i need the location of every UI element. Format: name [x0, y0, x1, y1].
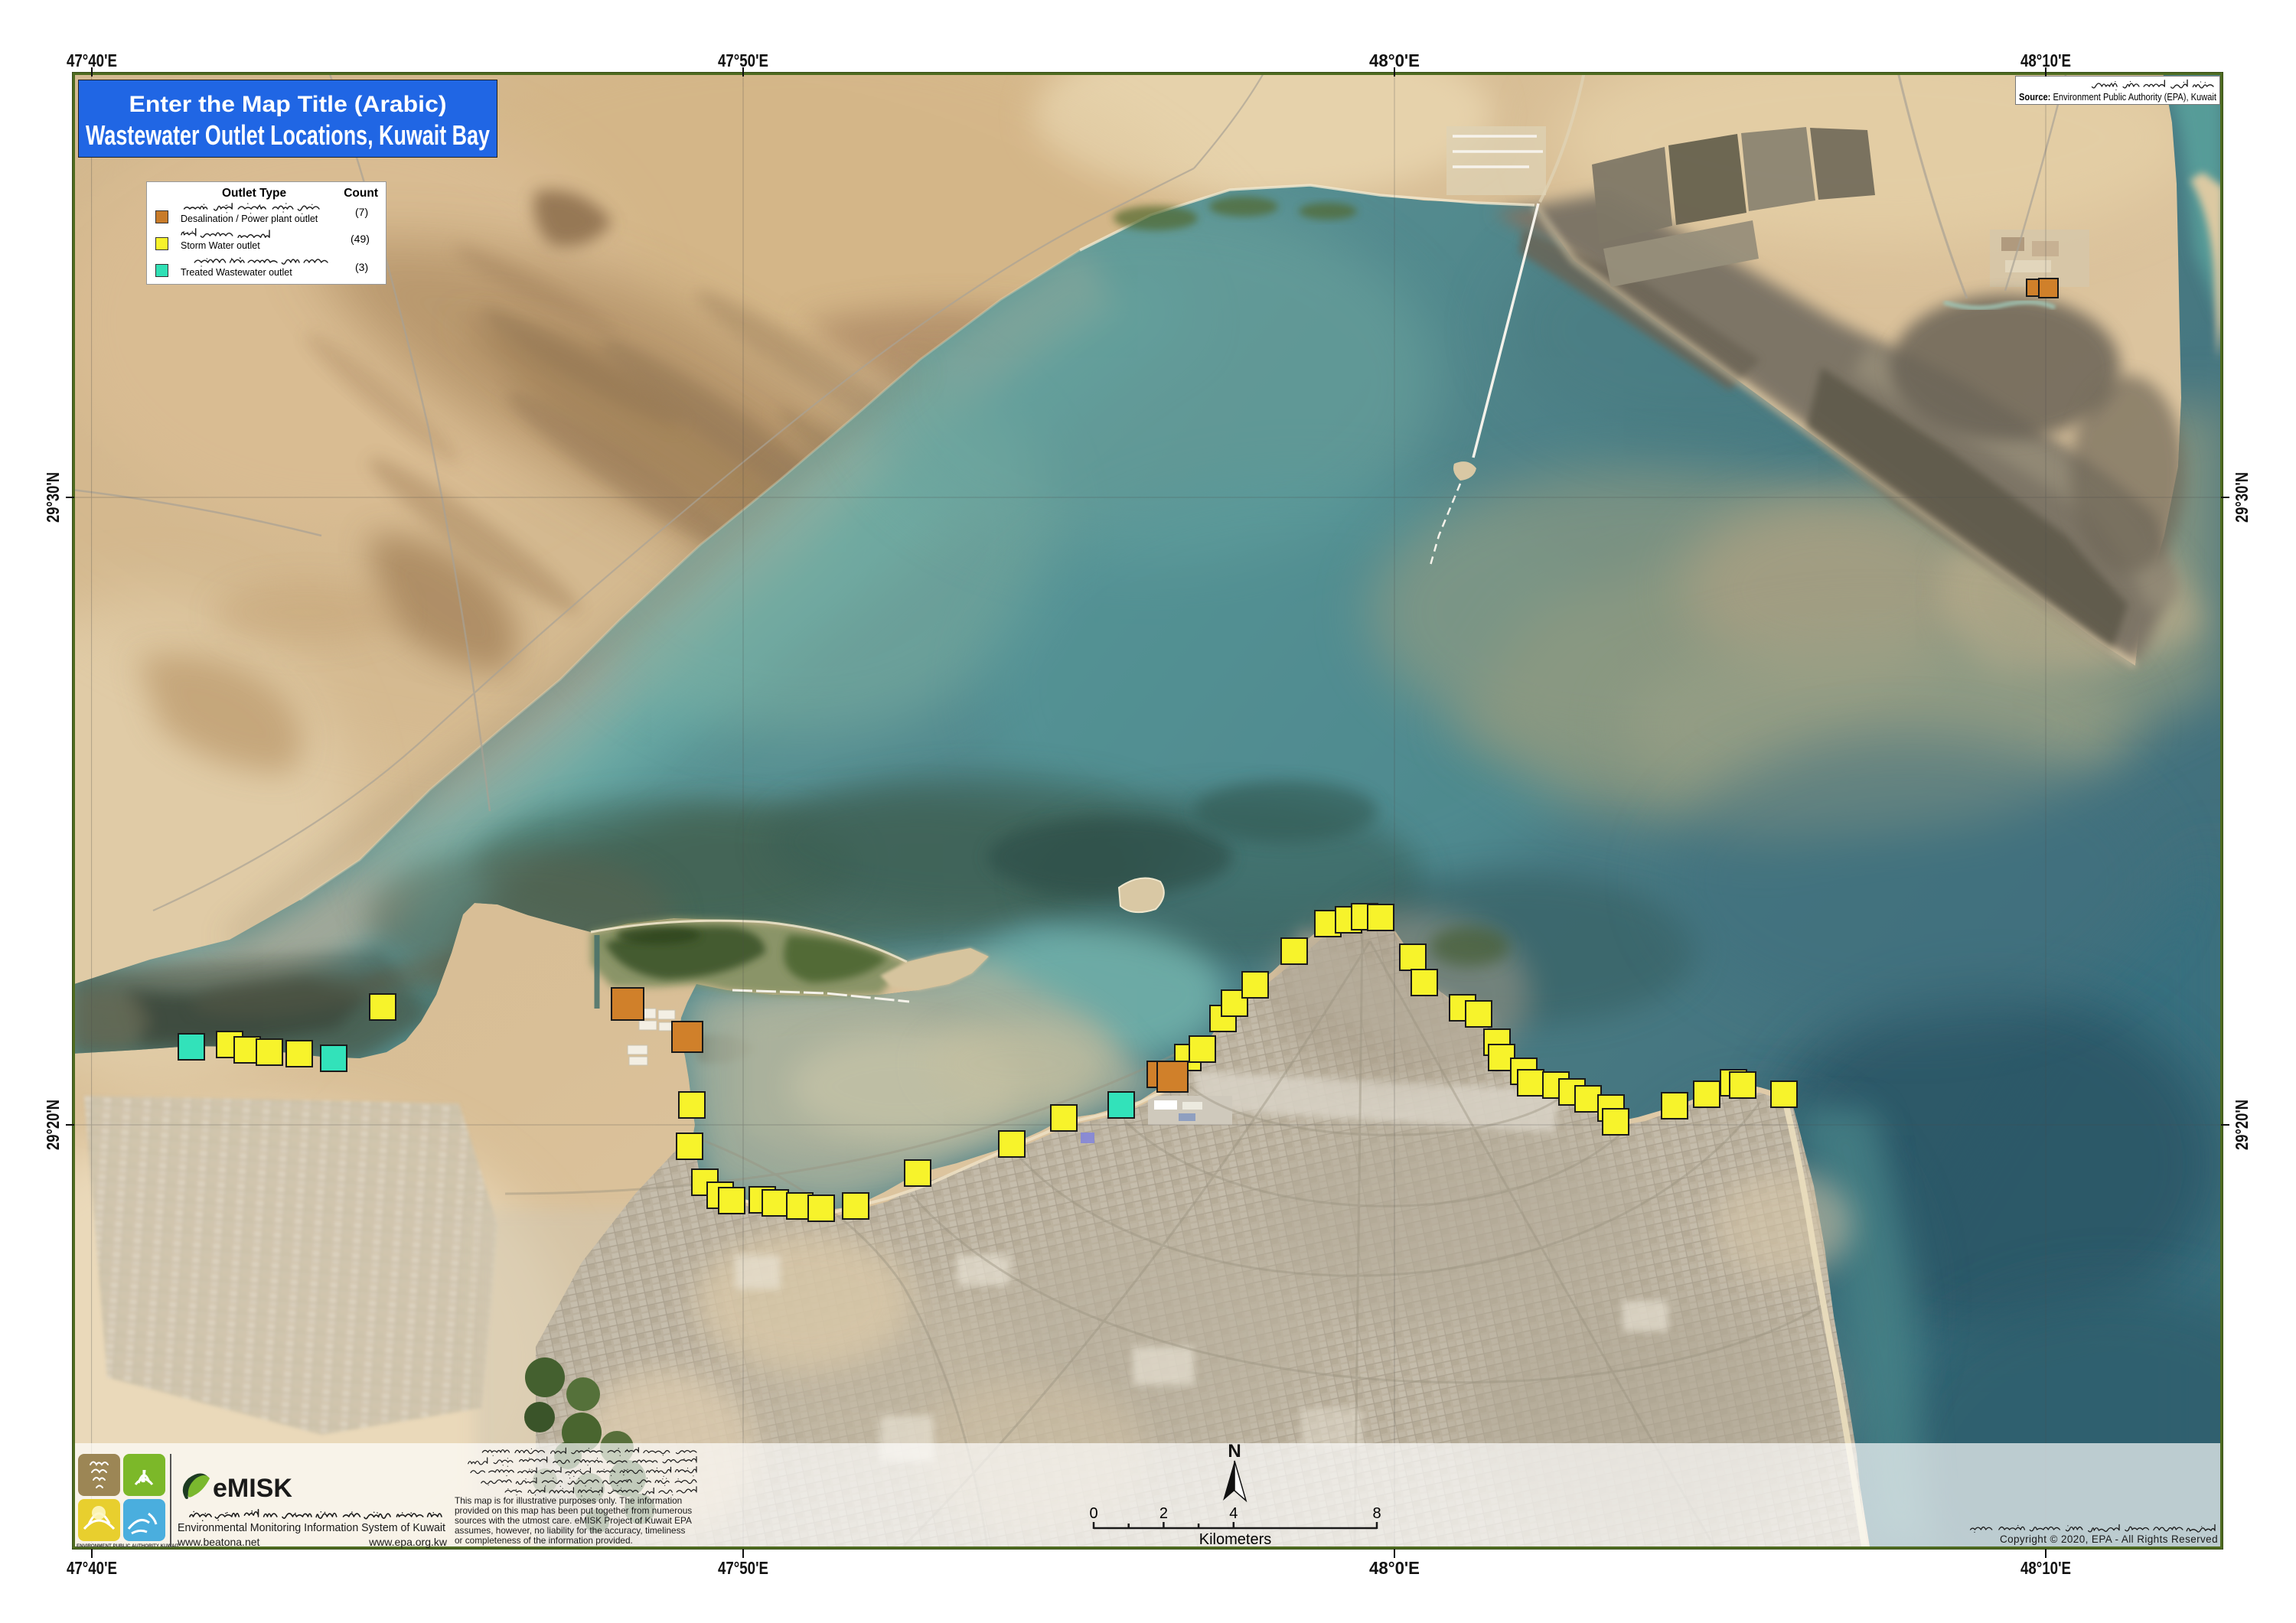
svg-text:48°0'E: 48°0'E — [1369, 1558, 1420, 1578]
svg-text:29°30'N: 29°30'N — [2232, 472, 2252, 523]
svg-text:Enter the Map Title (Arabic): Enter the Map Title (Arabic) — [129, 92, 447, 117]
svg-text:Kilometers: Kilometers — [1199, 1531, 1271, 1546]
svg-text:47°50'E: 47°50'E — [718, 1558, 768, 1578]
svg-text:29°20'N: 29°20'N — [2232, 1100, 2252, 1150]
svg-text:47°40'E: 47°40'E — [67, 1558, 117, 1578]
svg-text:29°20'N: 29°20'N — [43, 1100, 63, 1150]
svg-text:0: 0 — [1089, 1505, 1097, 1522]
svg-text:Source: Environment Public Aut: Source: Environment Public Authority (EP… — [2019, 91, 2216, 103]
svg-text:2: 2 — [1159, 1505, 1168, 1522]
svg-text:N: N — [1228, 1441, 1241, 1462]
svg-text:4: 4 — [1229, 1505, 1238, 1522]
svg-text:eMISK: eMISK — [213, 1474, 292, 1503]
svg-text:Environmental Monitoring Infor: Environmental Monitoring Information Sys… — [178, 1522, 445, 1534]
svg-text:8: 8 — [1372, 1505, 1381, 1522]
svg-text:48°10'E: 48°10'E — [2020, 1558, 2071, 1578]
svg-text:Wastewater Outlet Locations, K: Wastewater Outlet Locations, Kuwait Bay — [86, 119, 490, 151]
svg-text:29°30'N: 29°30'N — [43, 472, 63, 523]
